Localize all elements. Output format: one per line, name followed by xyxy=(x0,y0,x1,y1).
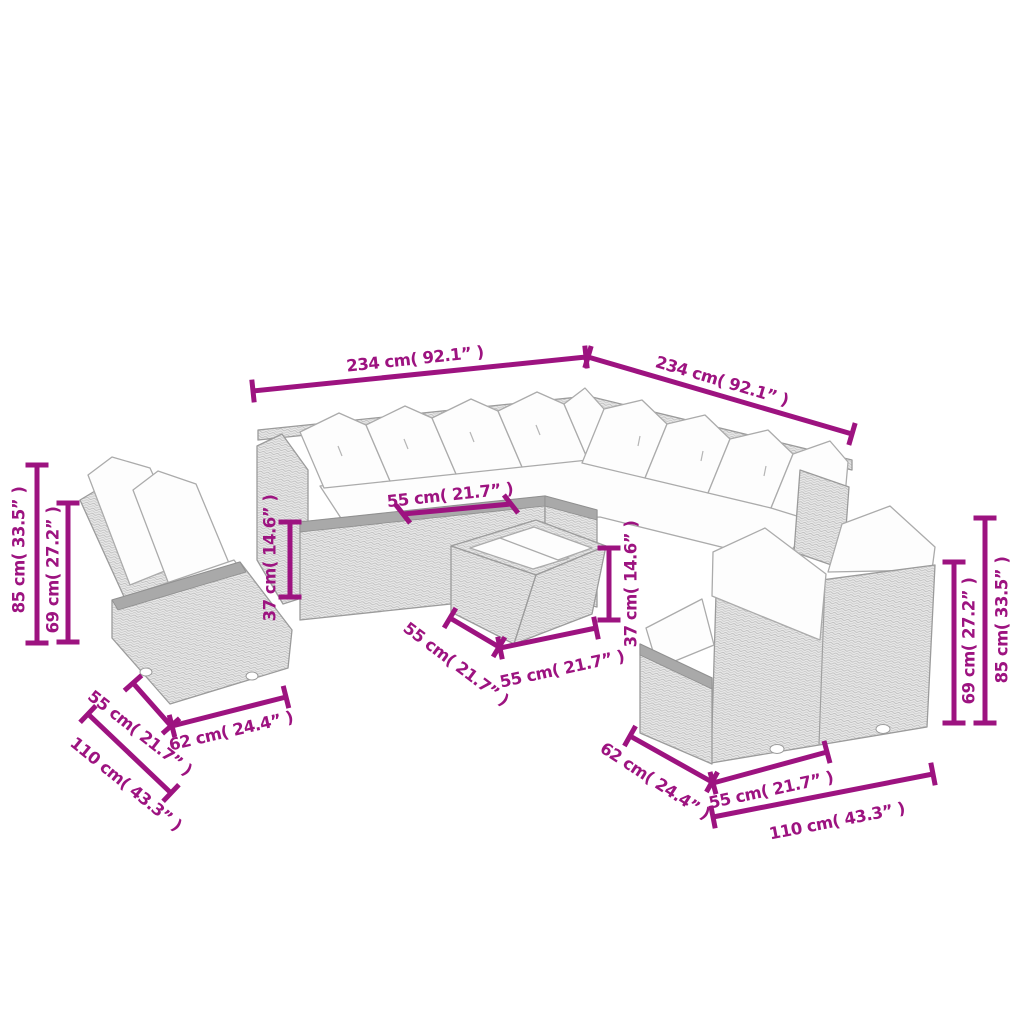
dim-label-height-right-total: 85 cm( 33.5” ) xyxy=(993,557,1012,684)
dim-label-seat-height-left: 37 cm( 14.6” ) xyxy=(261,495,280,622)
dim-label-table-height: 37 cm( 14.6” ) xyxy=(622,521,641,648)
dim-label-height-left-back: 69 cm( 27.2” ) xyxy=(44,507,63,634)
sofa-foot xyxy=(770,745,784,754)
diagram-canvas: 234 cm( 92.1” ) 234 cm( 92.1” ) 85 cm( 3… xyxy=(0,0,1024,1024)
sofa-foot xyxy=(876,725,890,734)
dim-label-height-left-total: 85 cm( 33.5” ) xyxy=(10,487,29,614)
dim-label-height-right-back: 69 cm( 27.2” ) xyxy=(960,578,979,705)
product-dimension-diagram: 234 cm( 92.1” ) 234 cm( 92.1” ) 85 cm( 3… xyxy=(0,0,1024,1024)
sofa-foot xyxy=(246,672,258,680)
sofa-foot xyxy=(140,668,152,676)
